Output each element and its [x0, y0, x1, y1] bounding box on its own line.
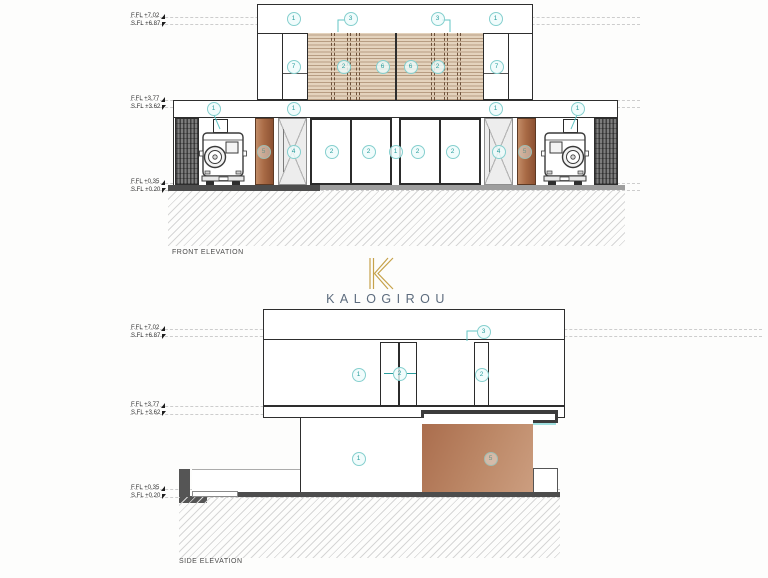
level-label: S.FL +6.87 [131, 21, 166, 28]
level-flag-icon [162, 411, 166, 416]
keynote-1: 1 [287, 102, 301, 116]
planter-box [533, 468, 558, 494]
keynote-3: 3 [344, 12, 358, 26]
level-flag-icon [161, 14, 165, 19]
pavement-strip [320, 185, 625, 190]
level-flag-icon [161, 326, 165, 331]
level-flag-icon [161, 97, 165, 102]
mullion [439, 120, 441, 183]
level-label: F.FL +3.77 [131, 402, 165, 409]
vehicle-right [541, 127, 589, 187]
drawing-sheet: F.FL +7.02 S.FL +6.87 F.FL +3.77 S.FL +3… [0, 0, 768, 578]
ground-hatch [168, 191, 625, 246]
level-text: F.FL +7.02 [131, 325, 159, 332]
keynote-1: 1 [489, 102, 503, 116]
keynote-2: 2 [411, 145, 425, 159]
level-label: F.FL +7.02 [131, 325, 165, 332]
level-label: S.FL +6.87 [131, 333, 166, 340]
level-text: S.FL +0.20 [131, 187, 160, 194]
slat-joint [457, 33, 461, 100]
slat-joint [331, 33, 335, 100]
keynote-2: 2 [475, 368, 489, 382]
door-handle [283, 129, 284, 172]
level-label: S.FL +3.62 [131, 104, 166, 111]
level-flag-icon [162, 105, 166, 110]
parapet-slab-line [264, 339, 564, 340]
keynote-1: 1 [352, 368, 366, 382]
keynote-5: 5 [518, 145, 532, 159]
level-label: F.FL +7.02 [131, 13, 165, 20]
keynote-6: 6 [404, 60, 418, 74]
keynote-2: 2 [325, 145, 339, 159]
level-flag-icon [162, 22, 166, 27]
keynote-7: 7 [287, 60, 301, 74]
ground-hatch [179, 497, 560, 558]
wood-slat-cladding [308, 33, 483, 100]
slat-joint [356, 33, 360, 100]
glass-doors-left [310, 118, 392, 185]
keynote-2: 2 [337, 60, 351, 74]
level-label: S.FL +0.20 [131, 493, 166, 500]
keynote-2: 2 [393, 367, 407, 381]
keynote-1: 1 [489, 12, 503, 26]
level-text: F.FL +0.35 [131, 179, 159, 186]
door-handle [489, 129, 490, 172]
keynote-2: 2 [446, 145, 460, 159]
brand-name: KALOGIROU [303, 292, 473, 306]
front-elevation-title: FRONT ELEVATION [172, 249, 244, 256]
keynote-5: 5 [484, 452, 498, 466]
level-flag-icon [161, 403, 165, 408]
kalogirou-monogram-icon [368, 257, 395, 290]
stone-wall-left [175, 118, 199, 185]
level-label: F.FL +0.35 [131, 179, 165, 186]
retaining-wall [179, 469, 190, 498]
keynote-4: 4 [287, 145, 301, 159]
level-text: S.FL +0.20 [131, 493, 160, 500]
keynote-3: 3 [477, 325, 491, 339]
keynote-1: 1 [352, 452, 366, 466]
level-text: S.FL +3.62 [131, 104, 160, 111]
level-flag-icon [162, 334, 166, 339]
keynote-4: 4 [492, 145, 506, 159]
level-text: F.FL +7.02 [131, 13, 159, 20]
side-terracotta-wall [422, 424, 533, 494]
floor-slab-band [173, 100, 618, 118]
vehicle-left [199, 127, 247, 187]
stone-wall-right [594, 118, 618, 185]
level-text: F.FL +0.35 [131, 485, 159, 492]
mullion [350, 120, 352, 183]
level-text: S.FL +6.87 [131, 333, 160, 340]
level-text: S.FL +6.87 [131, 21, 160, 28]
level-flag-icon [162, 188, 166, 193]
keynote-5: 5 [257, 145, 271, 159]
keynote-3: 3 [431, 12, 445, 26]
keynote-1: 1 [287, 12, 301, 26]
level-label: S.FL +0.20 [131, 187, 166, 194]
keynote-7: 7 [490, 60, 504, 74]
level-flag-icon [161, 486, 165, 491]
level-label: S.FL +3.62 [131, 410, 166, 417]
level-text: F.FL +3.77 [131, 402, 159, 409]
level-flag-icon [161, 180, 165, 185]
slat-joint [444, 33, 448, 100]
keynote-6: 6 [376, 60, 390, 74]
keynote-2: 2 [431, 60, 445, 74]
level-label: F.FL +3.77 [131, 96, 165, 103]
level-flag-icon [162, 494, 166, 499]
side-elevation-title: SIDE ELEVATION [179, 558, 243, 565]
level-text: F.FL +3.77 [131, 96, 159, 103]
keynote-2: 2 [362, 145, 376, 159]
level-text: S.FL +3.62 [131, 410, 160, 417]
keynote-1: 1 [571, 102, 585, 116]
keynote-1: 1 [389, 145, 403, 159]
level-label: F.FL +0.35 [131, 485, 165, 492]
party-wall-line [395, 33, 397, 100]
keynote-1: 1 [207, 102, 221, 116]
